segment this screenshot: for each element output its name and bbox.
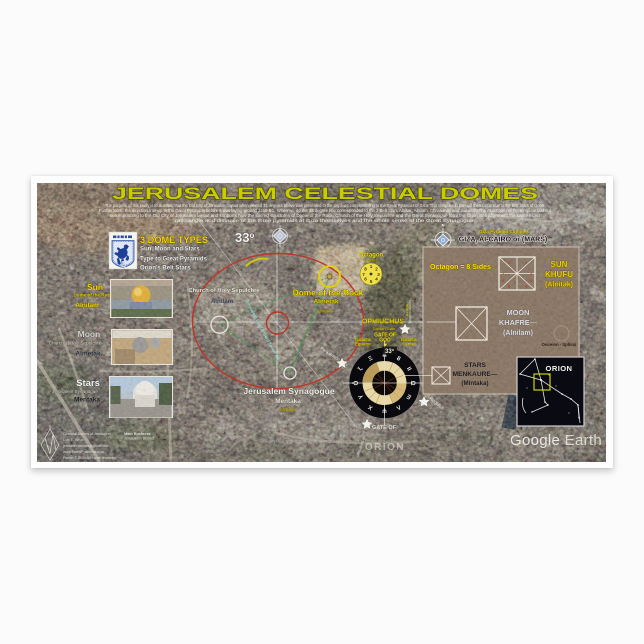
svg-text:KHAFRE—: KHAFRE— xyxy=(499,318,538,327)
svg-text:Golden Gate: Golden Gate xyxy=(373,326,396,331)
svg-text:Mintaka: Mintaka xyxy=(317,309,333,314)
svg-text:6: 6 xyxy=(502,279,504,283)
svg-text:Lois E. Wise: Lois E. Wise xyxy=(63,438,83,442)
svg-text:Alnilam: Alnilam xyxy=(75,302,99,309)
svg-text:Church of Holy Sepulchre: Church of Holy Sepulchre xyxy=(188,288,260,294)
svg-text:3: 3 xyxy=(530,279,532,283)
svg-text:(Alnitak): (Alnitak) xyxy=(545,282,573,289)
svg-text:6: 6 xyxy=(364,277,367,282)
svg-text:1: 1 xyxy=(370,264,373,269)
svg-text:MENKAURE—: MENKAURE— xyxy=(453,371,498,378)
svg-text:Jerusalem Synagogue: Jerusalem Synagogue xyxy=(243,386,334,396)
svg-text:Stars: Stars xyxy=(76,378,100,389)
svg-text:3 DOME TYPES: 3 DOME TYPES xyxy=(140,235,208,245)
svg-text:Alnilam: Alnilam xyxy=(211,298,234,305)
svg-text:SUN: SUN xyxy=(551,260,568,269)
svg-text:Celestial Domes of Jerusalem: Celestial Domes of Jerusalem xyxy=(63,432,111,436)
svg-text:Equator: Equator xyxy=(355,342,371,347)
svg-text:jerusalemdomes@gmail.com: jerusalemdomes@gmail.com xyxy=(62,444,109,448)
svg-text:Jerusalem Synagogue: Jerusalem Synagogue xyxy=(52,389,98,394)
svg-text:Sun, Moon and Stars: Sun, Moon and Stars xyxy=(140,247,200,253)
svg-text:8: 8 xyxy=(364,267,367,272)
svg-text:8: 8 xyxy=(508,261,510,265)
svg-text:ratio angle and distance of th: ratio angle and distance of the three py… xyxy=(175,218,475,223)
svg-text:Alnitak: Alnitak xyxy=(405,304,410,316)
svg-text:1: 1 xyxy=(525,261,527,265)
svg-text:Moon: Moon xyxy=(78,329,101,339)
svg-text:Giza Pyramid Complex: Giza Pyramid Complex xyxy=(479,229,529,234)
svg-text:GIZA, AI-CAIRO or (MARS): GIZA, AI-CAIRO or (MARS) xyxy=(459,237,547,244)
svg-text:4: 4 xyxy=(375,277,378,282)
svg-text:5: 5 xyxy=(508,285,510,289)
svg-text:Imagery Date: 6/30/2020 31°4: Imagery Date: 6/30/2020 31°46'36.61" N 3… xyxy=(262,440,395,444)
svg-text:www.PixelsPosterArt.com: www.PixelsPosterArt.com xyxy=(63,450,104,454)
svg-text:Osireion - Sphinx: Osireion - Sphinx xyxy=(542,342,577,347)
svg-text:STARS: STARS xyxy=(464,362,486,369)
svg-text:Main Business: Main Business xyxy=(124,432,151,436)
svg-text:N: N xyxy=(442,223,445,228)
svg-text:Mentaka: Mentaka xyxy=(74,397,100,404)
svg-text:Sun: Sun xyxy=(87,282,103,292)
svg-text:Jerusalem District: Jerusalem District xyxy=(124,437,155,441)
svg-text:2: 2 xyxy=(375,267,378,272)
svg-text:MOON: MOON xyxy=(507,308,530,317)
svg-text:Orion's Belt Stars: Orion's Belt Stars xyxy=(140,266,191,272)
svg-text:Google Earth: Google Earth xyxy=(510,432,602,449)
svg-text:8 Sides: 8 Sides xyxy=(364,258,377,263)
svg-text:ORION: ORION xyxy=(365,442,405,453)
svg-text:GATE OF: GATE OF xyxy=(372,425,397,431)
svg-text:Dome of the Rock: Dome of the Rock xyxy=(73,293,112,298)
svg-text:7: 7 xyxy=(362,272,365,277)
svg-text:Mintaka: Mintaka xyxy=(280,407,296,412)
svg-text:(Alnilam): (Alnilam) xyxy=(503,330,533,337)
svg-text:7: 7 xyxy=(502,272,504,276)
svg-text:(Mintaka): (Mintaka) xyxy=(461,380,488,387)
svg-text:ORION: ORION xyxy=(546,364,573,373)
svg-text:2: 2 xyxy=(530,272,532,276)
svg-text:5: 5 xyxy=(370,279,373,284)
svg-text:OPHIUCHUS: OPHIUCHUS xyxy=(362,319,404,326)
svg-text:Mentaka: Mentaka xyxy=(275,398,301,405)
svg-text:Poster © 2021 All rights reser: Poster © 2021 All rights reserved xyxy=(63,456,116,460)
svg-text:Almetak: Almetak xyxy=(314,299,339,306)
svg-text:KHUFU: KHUFU xyxy=(545,270,573,279)
svg-text:Church of Holy Sepulchre: Church of Holy Sepulchre xyxy=(49,341,102,346)
svg-text:Octagon = 8 Sides: Octagon = 8 Sides xyxy=(430,264,491,271)
svg-text:Dome of the Rock: Dome of the Rock xyxy=(293,288,364,298)
svg-text:JERUSALEM CELESTIAL DOMES: JERUSALEM CELESTIAL DOMES xyxy=(112,185,538,203)
svg-text:Center: Center xyxy=(402,342,416,347)
svg-text:Type to Great Pyramids: Type to Great Pyramids xyxy=(140,257,208,263)
svg-text:GOD: GOD xyxy=(379,338,391,344)
svg-text:Almetak: Almetak xyxy=(75,351,101,358)
